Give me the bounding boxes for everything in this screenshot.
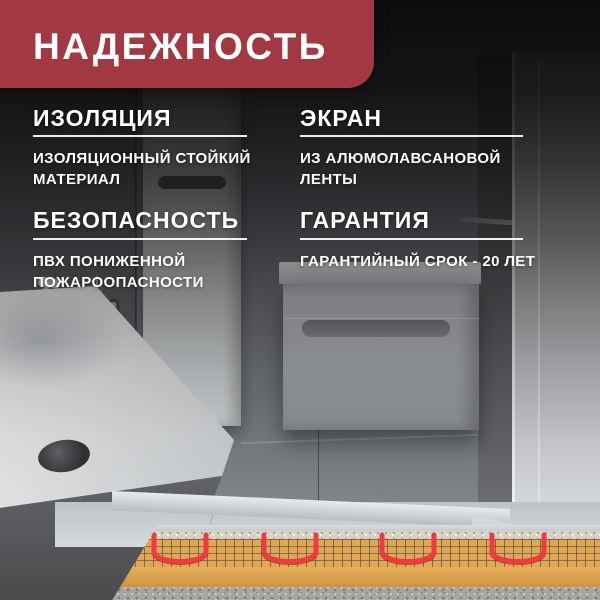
product-infographic: НАДЕЖНОСТЬ ИЗОЛЯЦИЯ ИЗОЛЯЦИОННЫЙ СТОЙКИЙ…: [0, 0, 600, 600]
feature-underline: [33, 135, 247, 137]
feature-body-screen: ИЗ АЛЮМОЛАВСАНОВОЙ ЛЕНТЫ: [300, 148, 555, 190]
feature-underline: [300, 135, 523, 137]
feature-underline: [300, 238, 523, 240]
feature-heading-screen: ЭКРАН: [300, 105, 382, 132]
feature-body-warranty: ГАРАНТИЙНЫЙ СРОК - 20 ЛЕТ: [300, 251, 555, 272]
feature-body-insulation: ИЗОЛЯЦИОННЫЙ СТОЙКИЙ МАТЕРИАЛ: [33, 148, 278, 190]
feature-heading-warranty: ГАРАНТИЯ: [300, 207, 430, 234]
feature-heading-safety: БЕЗОПАСНОСТЬ: [33, 207, 239, 234]
page-title: НАДЕЖНОСТЬ: [33, 26, 328, 68]
text-content: НАДЕЖНОСТЬ ИЗОЛЯЦИЯ ИЗОЛЯЦИОННЫЙ СТОЙКИЙ…: [0, 0, 600, 600]
feature-underline: [33, 238, 247, 240]
feature-body-safety: ПВХ ПОНИЖЕННОЙ ПОЖАРООПАСНОСТИ: [33, 251, 278, 293]
feature-heading-insulation: ИЗОЛЯЦИЯ: [33, 105, 172, 132]
